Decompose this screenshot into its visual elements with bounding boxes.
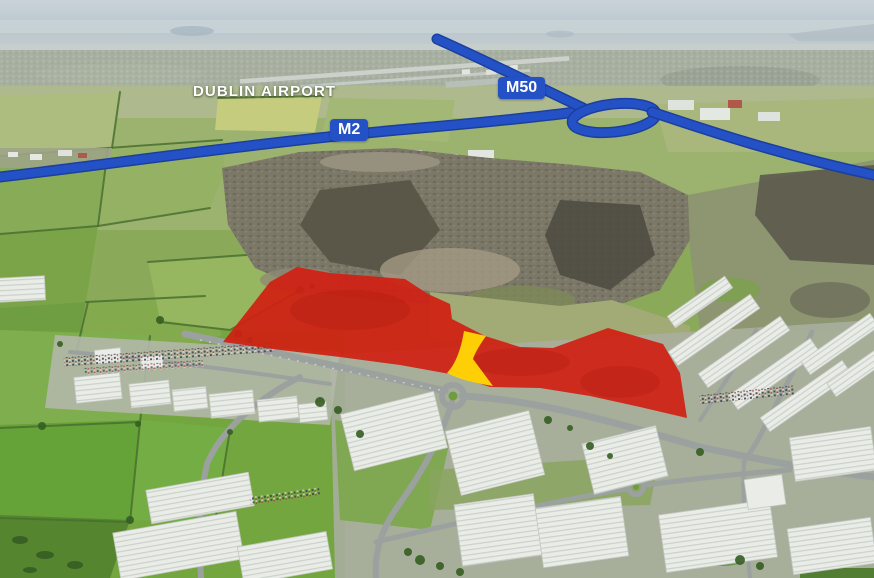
- m50-route-badge: M50: [498, 77, 545, 99]
- m2-route-badge: M2: [330, 119, 368, 141]
- warehouse-building: [0, 276, 46, 302]
- map-canvas: [0, 0, 874, 578]
- roundabout-island: [449, 392, 458, 401]
- island: [170, 26, 214, 36]
- horizon-haze: [0, 20, 874, 33]
- island: [546, 31, 574, 38]
- airport-label: DUBLIN AIRPORT: [193, 83, 336, 100]
- aerial-photo: DUBLIN AIRPORT M2 M50: [0, 0, 874, 578]
